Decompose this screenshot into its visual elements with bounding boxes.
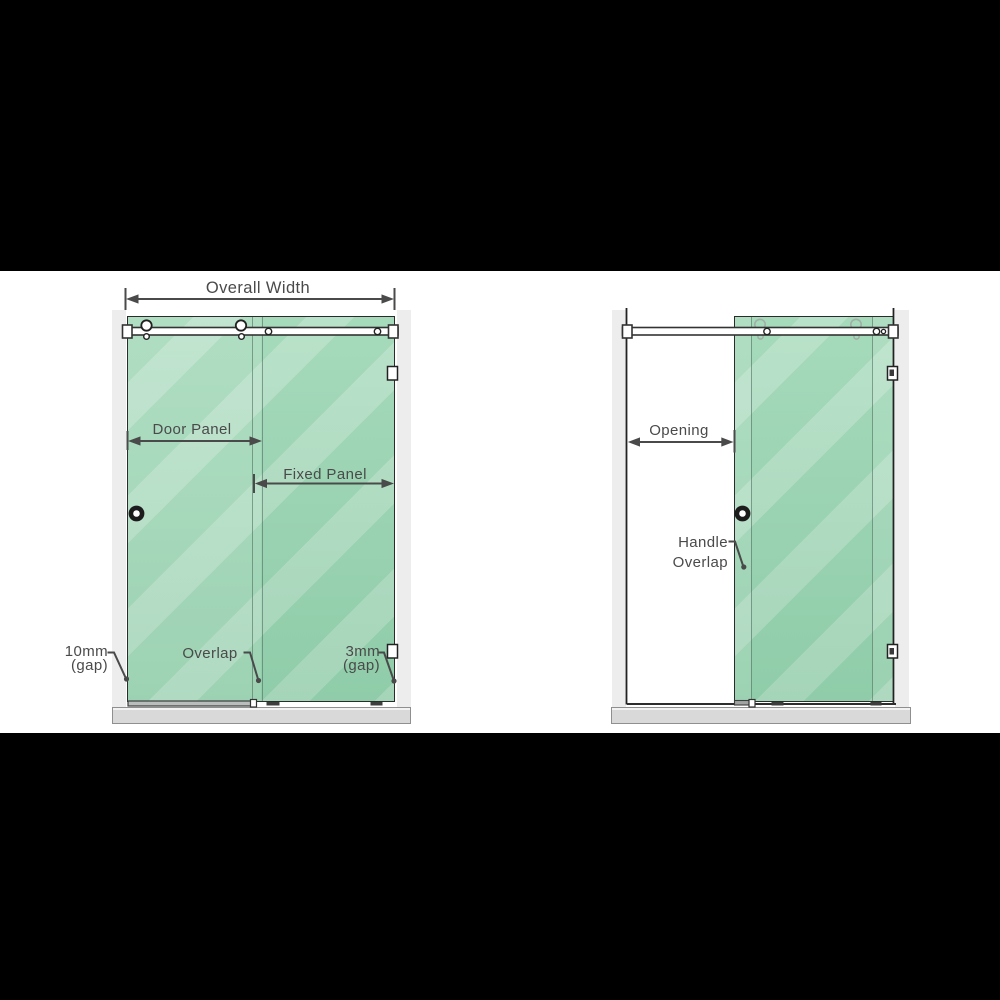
right-wall-strip-left <box>612 310 626 707</box>
fixed-panel-left-edge <box>262 317 263 701</box>
gap-left-unit: (gap) <box>40 659 108 673</box>
left-floor-base <box>112 707 411 724</box>
right-wall-strip-right <box>895 310 909 707</box>
gap-right-unit: (gap) <box>312 659 380 673</box>
handle-overlap-label: Handle Overlap <box>640 533 728 573</box>
handle-overlap-line2: Overlap <box>640 553 728 573</box>
gap-left-label: 10mm (gap) <box>40 645 108 673</box>
opening-label: Opening <box>649 422 709 439</box>
letterbox-top <box>0 0 1000 271</box>
door-panel-right-edge <box>252 317 253 701</box>
left-wall-strip-right <box>397 310 411 707</box>
open-door-right-strip <box>872 317 893 701</box>
overlap-label: Overlap <box>182 645 237 662</box>
door-panel-tint <box>128 317 261 701</box>
right-glass-assembly <box>734 316 894 702</box>
overall-width-label: Overall Width <box>206 279 310 298</box>
door-panel-label: Door Panel <box>152 421 231 438</box>
open-door-left-strip <box>735 317 751 701</box>
handle-overlap-line1: Handle <box>640 533 728 553</box>
left-wall-strip-left <box>112 310 126 707</box>
fixed-panel-label: Fixed Panel <box>283 466 367 483</box>
open-door-panel-right-edge <box>872 317 873 701</box>
gap-right-label: 3mm (gap) <box>312 645 380 673</box>
right-floor-base <box>611 707 911 724</box>
open-fixed-panel-left-edge <box>751 317 752 701</box>
diagram-stage: Overall Width Door Panel Fixed Panel 10m… <box>0 0 1000 1000</box>
letterbox-bottom <box>0 733 1000 1000</box>
